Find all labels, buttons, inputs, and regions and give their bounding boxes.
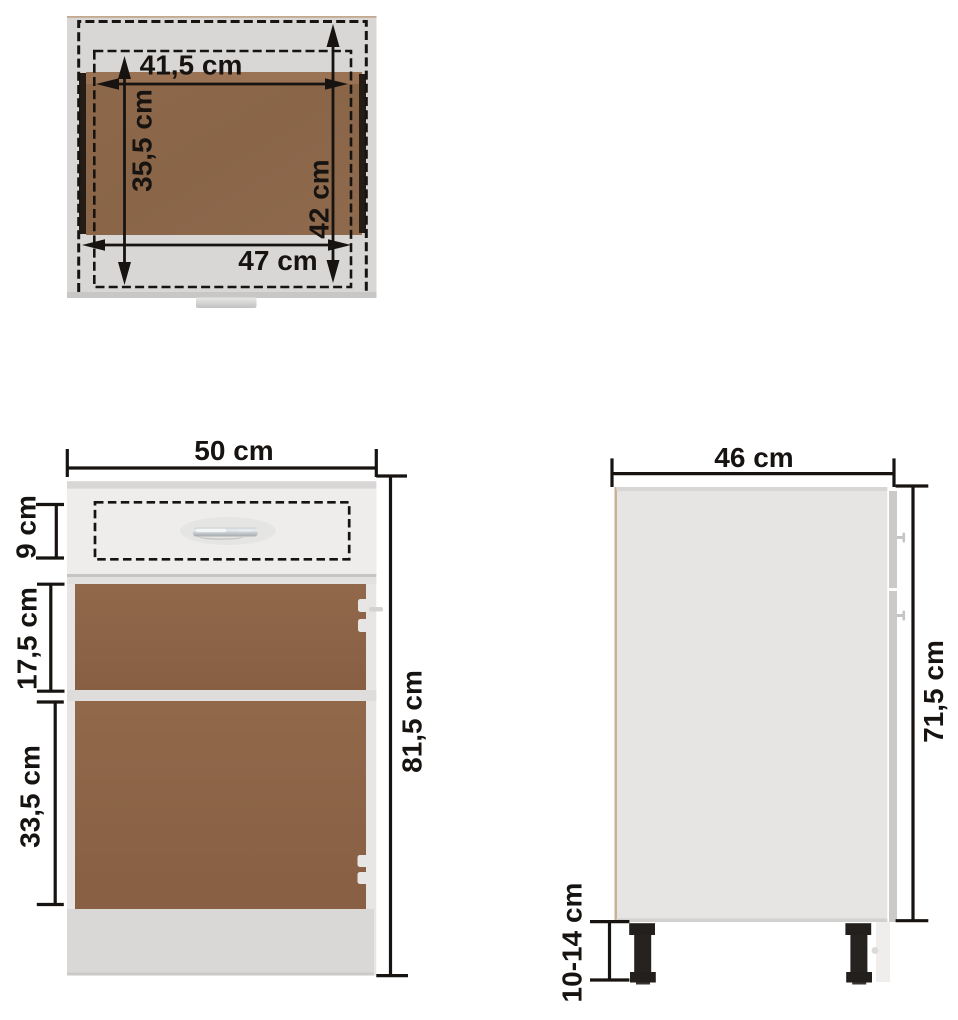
svg-text:71,5 cm: 71,5 cm xyxy=(918,640,949,743)
svg-text:46 cm: 46 cm xyxy=(714,442,793,473)
svg-text:42 cm: 42 cm xyxy=(304,159,335,238)
svg-text:17,5 cm: 17,5 cm xyxy=(12,587,43,690)
svg-text:35,5 cm: 35,5 cm xyxy=(127,89,158,192)
svg-text:10-14 cm: 10-14 cm xyxy=(557,883,588,1003)
svg-text:81,5 cm: 81,5 cm xyxy=(397,670,428,773)
svg-text:33,5 cm: 33,5 cm xyxy=(15,745,46,848)
svg-text:50 cm: 50 cm xyxy=(194,435,273,466)
svg-text:9 cm: 9 cm xyxy=(11,495,42,559)
svg-text:47 cm: 47 cm xyxy=(238,245,317,276)
svg-text:41,5 cm: 41,5 cm xyxy=(140,50,243,81)
